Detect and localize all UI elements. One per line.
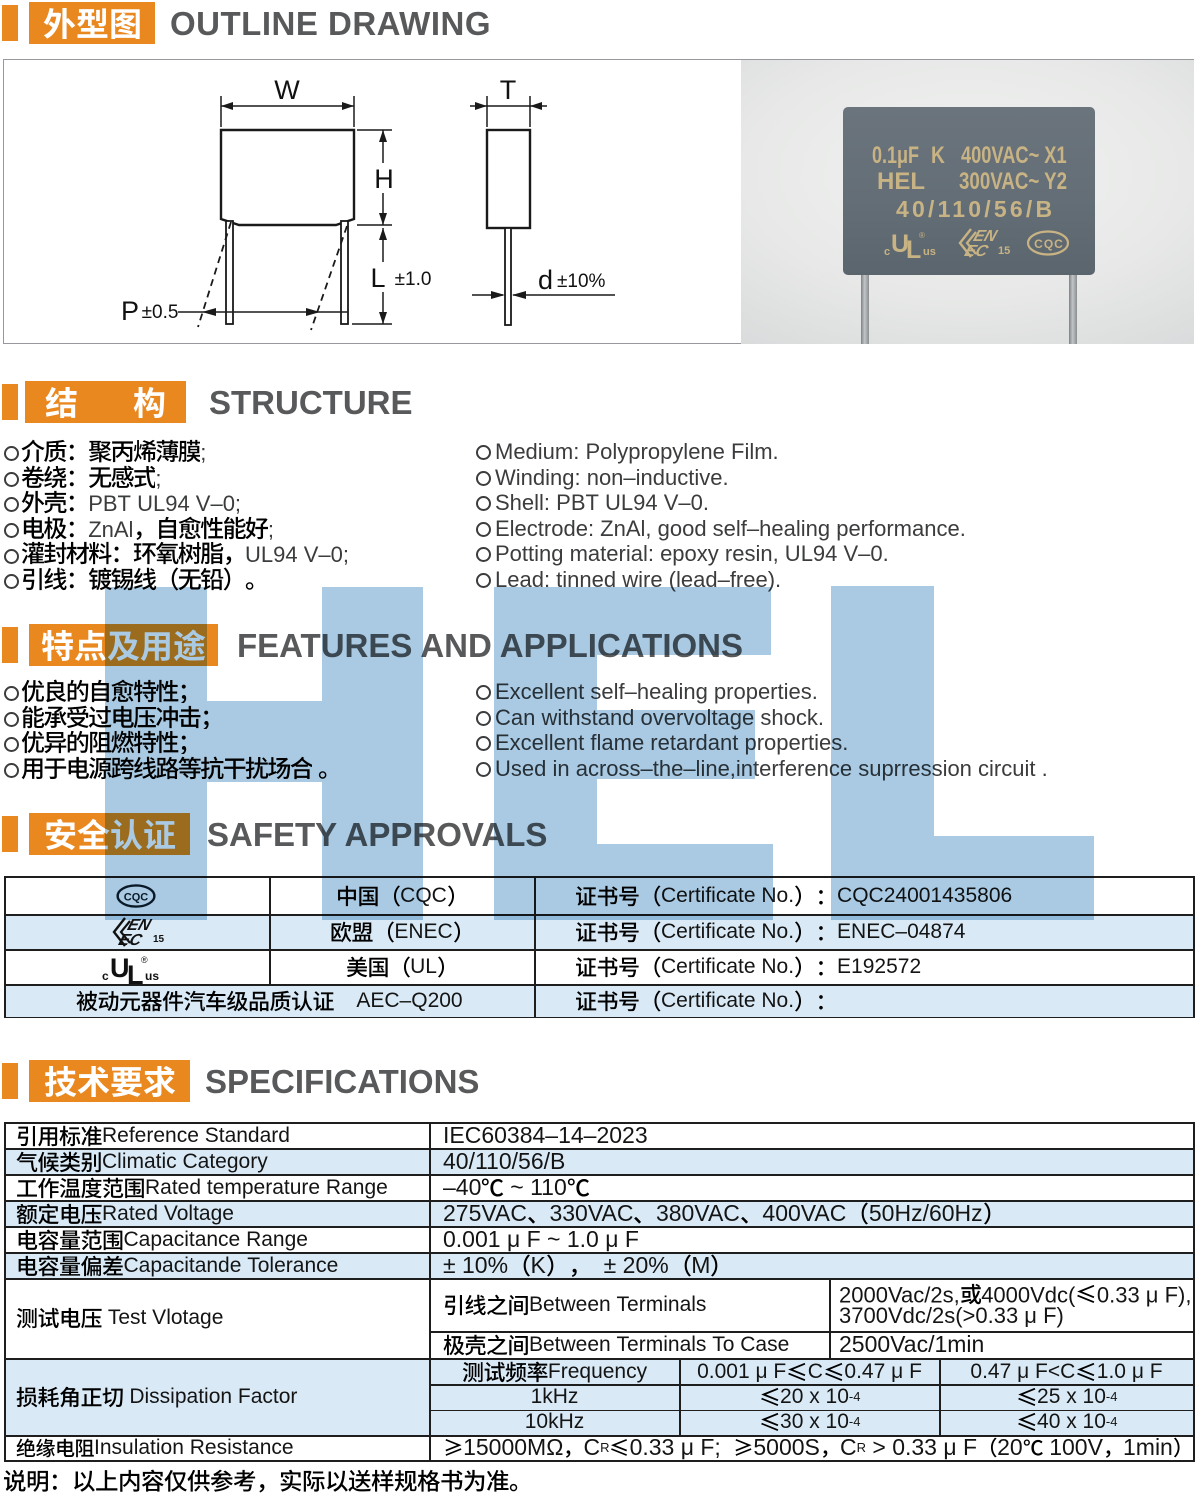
svg-text:L: L bbox=[370, 263, 385, 293]
svg-text:d: d bbox=[538, 265, 553, 295]
svg-text:±1.0: ±1.0 bbox=[395, 269, 432, 290]
svg-text:c: c bbox=[884, 246, 890, 258]
svg-text:±0.5: ±0.5 bbox=[142, 302, 179, 323]
svg-text:us: us bbox=[923, 246, 936, 258]
svg-text:®: ® bbox=[141, 955, 148, 965]
svg-text:P: P bbox=[121, 296, 139, 326]
svg-text:T: T bbox=[500, 75, 517, 105]
svg-text:U: U bbox=[110, 953, 128, 983]
svg-text:CQC: CQC bbox=[1034, 237, 1064, 251]
svg-text:®: ® bbox=[919, 231, 925, 240]
svg-text:c: c bbox=[102, 969, 109, 983]
svg-text:H: H bbox=[374, 164, 394, 194]
svg-text:±10%: ±10% bbox=[557, 271, 606, 292]
svg-text:15: 15 bbox=[998, 245, 1010, 257]
svg-text:W: W bbox=[274, 75, 300, 105]
svg-text:15: 15 bbox=[153, 934, 165, 945]
svg-text:CQC: CQC bbox=[124, 892, 149, 904]
svg-text:us: us bbox=[145, 969, 159, 983]
